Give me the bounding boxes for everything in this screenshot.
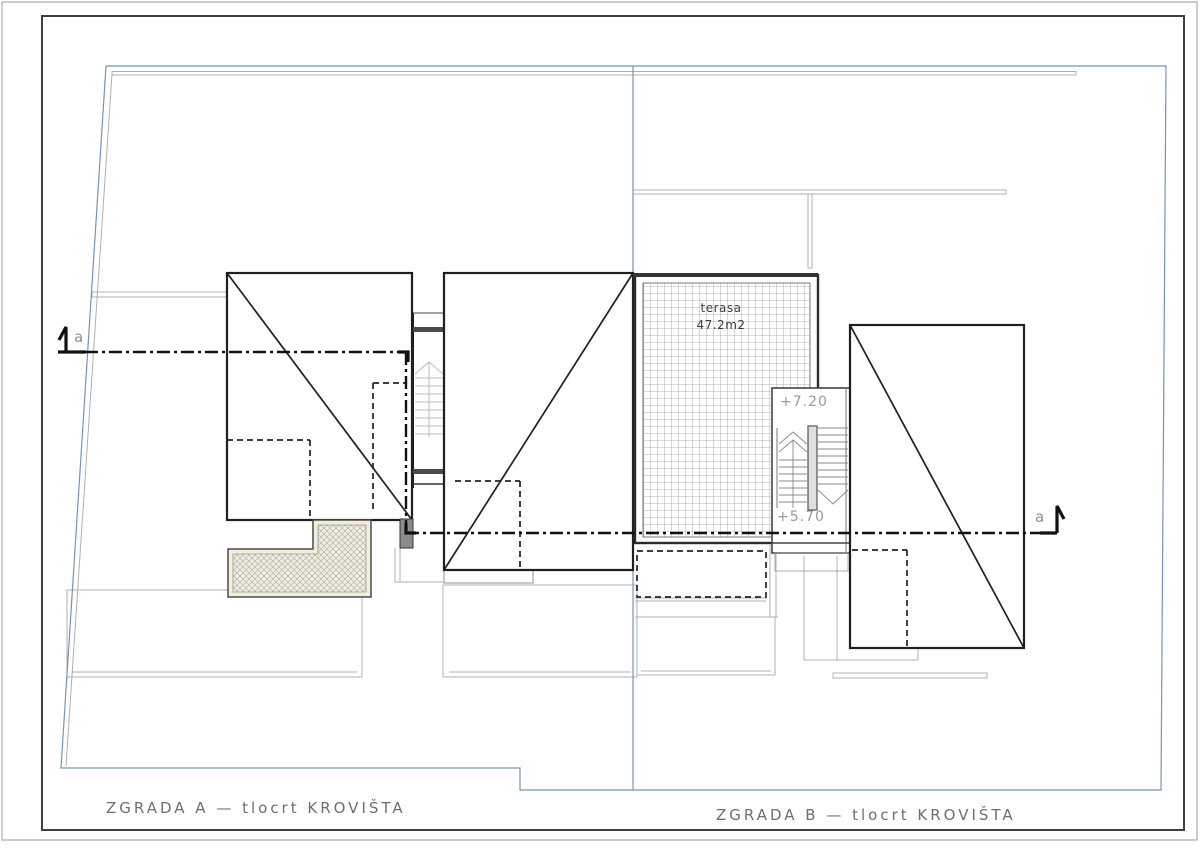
title-zgrada-a: ZGRADA A — tlocrt KROVIŠTA	[106, 799, 406, 817]
section-letter-right: a	[1035, 508, 1044, 526]
roof-a2	[444, 273, 633, 570]
terrace-name: terasa	[688, 300, 754, 317]
roof-b	[850, 325, 1024, 648]
floor-plan-canvas	[0, 0, 1200, 848]
section-letter-left: a	[74, 328, 83, 346]
terrace-label: terasa 47.2m2	[688, 300, 754, 334]
stairwell-b	[772, 388, 850, 571]
title-zgrada-b: ZGRADA B — tlocrt KROVIŠTA	[716, 806, 1016, 824]
elevation-label-lower: +5.70	[777, 509, 825, 525]
roof-a1	[227, 273, 412, 520]
terrace-area: 47.2m2	[688, 317, 754, 334]
elevation-label-upper: +7.20	[780, 394, 828, 410]
blueprint-page: terasa 47.2m2 +7.20 +5.70 a a ZGRADA A —…	[0, 0, 1200, 848]
